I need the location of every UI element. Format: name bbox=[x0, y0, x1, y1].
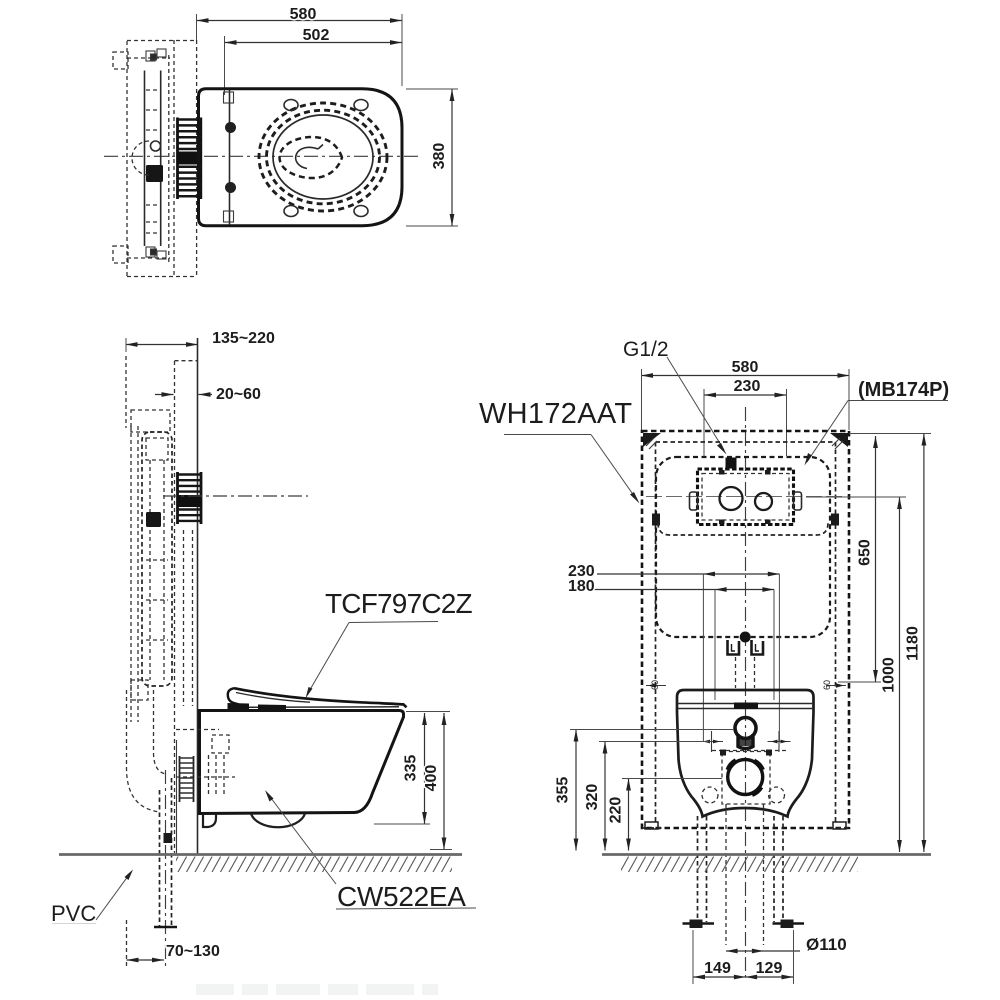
svg-text:1000: 1000 bbox=[881, 657, 898, 693]
svg-text:355: 355 bbox=[555, 777, 572, 804]
svg-text:PVC: PVC bbox=[51, 901, 96, 926]
svg-text:(MB174P): (MB174P) bbox=[858, 379, 949, 401]
svg-text:580: 580 bbox=[732, 359, 759, 376]
svg-text:149: 149 bbox=[704, 960, 731, 977]
svg-text:220: 220 bbox=[608, 797, 625, 824]
svg-text:380: 380 bbox=[431, 143, 448, 170]
svg-text:400: 400 bbox=[423, 765, 440, 792]
svg-text:70~130: 70~130 bbox=[166, 943, 220, 960]
svg-text:TCF797C2Z: TCF797C2Z bbox=[325, 588, 473, 619]
svg-text:20~60: 20~60 bbox=[216, 386, 261, 403]
svg-text:Ø110: Ø110 bbox=[806, 935, 847, 954]
svg-text:60: 60 bbox=[650, 680, 660, 690]
svg-text:230: 230 bbox=[734, 378, 761, 395]
svg-text:580: 580 bbox=[290, 6, 317, 23]
svg-text:G1/2: G1/2 bbox=[623, 338, 669, 361]
svg-text:650: 650 bbox=[857, 539, 874, 566]
svg-text:320: 320 bbox=[584, 784, 601, 811]
svg-text:WH172AAT: WH172AAT bbox=[479, 398, 632, 430]
svg-text:502: 502 bbox=[303, 27, 330, 44]
svg-text:335: 335 bbox=[403, 755, 420, 782]
svg-text:129: 129 bbox=[756, 960, 783, 977]
svg-text:60: 60 bbox=[822, 680, 832, 690]
svg-text:1180: 1180 bbox=[905, 626, 922, 661]
svg-text:CW522EA: CW522EA bbox=[337, 881, 466, 912]
svg-text:135~220: 135~220 bbox=[212, 330, 275, 347]
svg-text:180: 180 bbox=[568, 578, 595, 595]
